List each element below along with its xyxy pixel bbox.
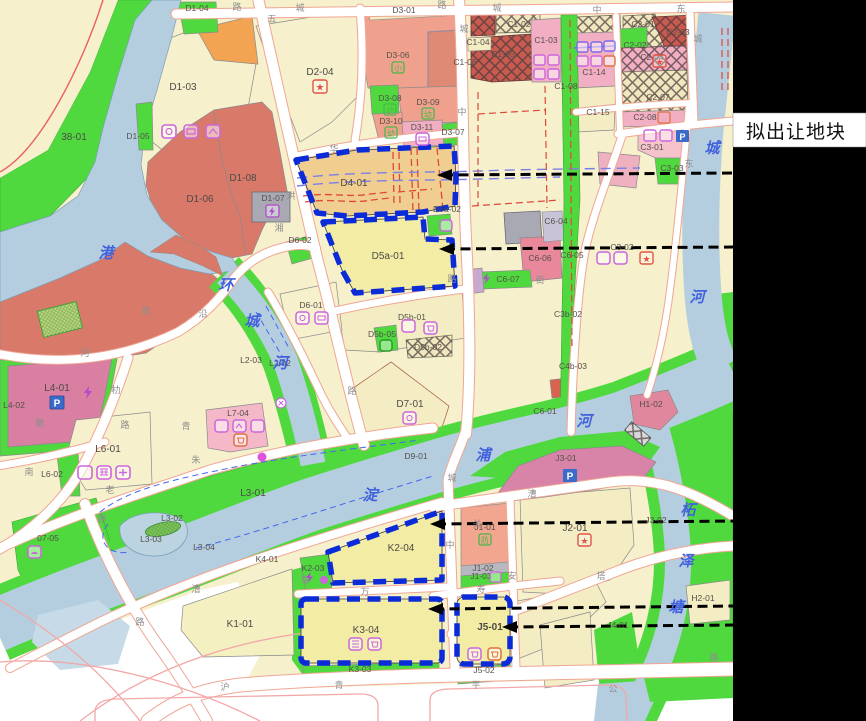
svg-text:东: 东 bbox=[684, 158, 693, 169]
svg-text:D9-01: D9-01 bbox=[404, 451, 427, 461]
svg-text:C2-08: C2-08 bbox=[633, 112, 656, 122]
svg-text:K3-03: K3-03 bbox=[349, 664, 372, 674]
svg-text:C2-01: C2-01 bbox=[631, 19, 654, 29]
svg-text:C1-02: C1-02 bbox=[507, 19, 530, 29]
svg-text:K2-03: K2-03 bbox=[302, 563, 325, 573]
svg-text:五: 五 bbox=[267, 14, 276, 24]
svg-text:J2-01: J2-01 bbox=[562, 523, 587, 534]
svg-text:C6-06: C6-06 bbox=[528, 253, 551, 263]
svg-text:L4-02: L4-02 bbox=[3, 400, 25, 410]
svg-text:C6-05: C6-05 bbox=[560, 250, 583, 260]
svg-text:L6-02: L6-02 bbox=[41, 469, 63, 479]
svg-text:★: ★ bbox=[316, 83, 325, 94]
svg-text:东: 东 bbox=[676, 3, 685, 14]
svg-text:街: 街 bbox=[535, 274, 544, 285]
svg-text:C1-05: C1-05 bbox=[491, 49, 514, 59]
svg-text:城: 城 bbox=[492, 3, 501, 13]
svg-text:J3-01: J3-01 bbox=[555, 453, 577, 463]
svg-text:L2-03: L2-03 bbox=[240, 355, 262, 365]
svg-text:安: 安 bbox=[507, 570, 516, 581]
svg-text:C1-15: C1-15 bbox=[586, 107, 609, 117]
svg-text:路: 路 bbox=[135, 616, 144, 627]
svg-text:拟出让地块: 拟出让地块 bbox=[746, 121, 846, 143]
svg-text:路: 路 bbox=[232, 1, 241, 12]
svg-text:D3-06: D3-06 bbox=[386, 50, 409, 60]
svg-text:城: 城 bbox=[693, 34, 702, 44]
svg-text:中: 中 bbox=[592, 4, 601, 15]
svg-text:老: 老 bbox=[105, 484, 114, 495]
svg-text:D5a-01: D5a-01 bbox=[372, 251, 405, 262]
svg-text:洪: 洪 bbox=[286, 190, 295, 201]
svg-text:南: 南 bbox=[24, 466, 33, 477]
svg-text:K3-04: K3-04 bbox=[353, 625, 380, 636]
svg-text:J4-01: J4-01 bbox=[607, 620, 629, 630]
svg-text:D1-08: D1-08 bbox=[229, 173, 257, 184]
svg-text:★: ★ bbox=[655, 57, 663, 67]
svg-text:小: 小 bbox=[394, 64, 402, 73]
svg-text:L3-04: L3-04 bbox=[193, 542, 215, 552]
svg-text:P: P bbox=[679, 132, 685, 142]
svg-text:D3-09: D3-09 bbox=[416, 97, 439, 107]
svg-text:观: 观 bbox=[141, 306, 150, 316]
svg-text:D5b-05: D5b-05 bbox=[368, 329, 396, 339]
svg-text:平: 平 bbox=[471, 680, 480, 690]
svg-text:L3-02: L3-02 bbox=[161, 513, 183, 523]
svg-text:K4-01: K4-01 bbox=[256, 554, 279, 564]
svg-text:K1-01: K1-01 bbox=[227, 619, 254, 630]
svg-text:D1-06: D1-06 bbox=[186, 194, 214, 205]
svg-text:L3-01: L3-01 bbox=[240, 488, 266, 499]
svg-text:幼: 幼 bbox=[424, 109, 432, 119]
svg-text:D1-05: D1-05 bbox=[126, 131, 149, 141]
svg-text:J5-02: J5-02 bbox=[473, 665, 495, 675]
svg-text:L4-01: L4-01 bbox=[44, 383, 70, 394]
svg-text:D3-07: D3-07 bbox=[441, 127, 464, 137]
svg-text:D6-01: D6-01 bbox=[299, 300, 322, 310]
svg-text:D1-04: D1-04 bbox=[185, 3, 208, 13]
svg-text:公: 公 bbox=[608, 684, 617, 694]
svg-text:C2-07: C2-07 bbox=[646, 92, 669, 102]
svg-text:H1-02: H1-02 bbox=[639, 399, 662, 409]
svg-text:路: 路 bbox=[709, 652, 718, 663]
svg-text:C3b-02: C3b-02 bbox=[554, 309, 582, 319]
svg-text:C1-03: C1-03 bbox=[534, 35, 557, 45]
svg-text:D4-01: D4-01 bbox=[340, 178, 368, 189]
svg-text:敏: 敏 bbox=[35, 417, 44, 428]
svg-text:H2-01: H2-01 bbox=[691, 593, 714, 603]
svg-text:K2-04: K2-04 bbox=[388, 543, 415, 554]
svg-text:幼: 幼 bbox=[387, 128, 395, 138]
svg-text:C2-03: C2-03 bbox=[666, 27, 689, 37]
svg-text:路: 路 bbox=[120, 419, 129, 430]
svg-text:路: 路 bbox=[347, 385, 356, 396]
svg-text:中: 中 bbox=[457, 106, 466, 117]
svg-text:幼: 幼 bbox=[386, 105, 394, 115]
svg-text:C3-03: C3-03 bbox=[660, 163, 683, 173]
svg-text:中: 中 bbox=[445, 539, 454, 550]
svg-text:C1-14: C1-14 bbox=[582, 67, 605, 77]
svg-text:城: 城 bbox=[459, 24, 468, 34]
svg-text:C6-04: C6-04 bbox=[544, 216, 567, 226]
svg-text:C3-01: C3-01 bbox=[640, 142, 663, 152]
svg-text:P: P bbox=[567, 472, 574, 483]
svg-text:城: 城 bbox=[295, 3, 304, 13]
svg-text:泽: 泽 bbox=[678, 553, 695, 570]
svg-text:D3-11: D3-11 bbox=[411, 122, 434, 132]
svg-text:J1-02: J1-02 bbox=[472, 563, 494, 573]
svg-text:D1-07: D1-07 bbox=[261, 193, 284, 203]
svg-text:★: ★ bbox=[642, 254, 650, 264]
svg-text:P: P bbox=[54, 399, 61, 410]
svg-text:路: 路 bbox=[447, 273, 456, 284]
svg-text:漕: 漕 bbox=[527, 488, 536, 499]
svg-text:漕: 漕 bbox=[191, 583, 200, 594]
svg-text:J3-02: J3-02 bbox=[645, 515, 667, 525]
svg-text:城: 城 bbox=[447, 473, 456, 483]
svg-text:华: 华 bbox=[329, 143, 338, 154]
svg-text:青: 青 bbox=[181, 420, 190, 431]
svg-text:L3-03: L3-03 bbox=[140, 534, 162, 544]
svg-text:寿: 寿 bbox=[476, 583, 485, 594]
svg-text:D3-01: D3-01 bbox=[392, 5, 415, 15]
svg-text:D1-03: D1-03 bbox=[169, 82, 197, 93]
svg-text:C6-07: C6-07 bbox=[496, 274, 519, 284]
svg-text:路: 路 bbox=[97, 513, 106, 524]
svg-text:C3-02: C3-02 bbox=[610, 242, 633, 252]
svg-text:湘: 湘 bbox=[274, 222, 283, 233]
svg-text:C6-01: C6-01 bbox=[533, 406, 556, 416]
svg-text:L7-04: L7-04 bbox=[227, 408, 249, 418]
svg-text:C2-02: C2-02 bbox=[623, 40, 646, 50]
svg-text:D6-02: D6-02 bbox=[288, 235, 311, 245]
svg-text:38-01: 38-01 bbox=[61, 132, 87, 143]
svg-text:D5b-02: D5b-02 bbox=[414, 342, 442, 352]
svg-text:沿: 沿 bbox=[198, 309, 207, 319]
svg-text:关: 关 bbox=[472, 518, 481, 529]
svg-text:青: 青 bbox=[334, 679, 343, 690]
svg-text:C1-06: C1-06 bbox=[453, 57, 476, 67]
svg-text:C4b-03: C4b-03 bbox=[559, 361, 587, 371]
svg-text:万: 万 bbox=[360, 587, 369, 597]
svg-text:防: 防 bbox=[481, 535, 489, 545]
svg-text:D7-01: D7-01 bbox=[396, 399, 424, 410]
svg-text:C1-04: C1-04 bbox=[466, 37, 489, 47]
svg-text:河: 河 bbox=[80, 347, 89, 358]
svg-text:沪: 沪 bbox=[220, 681, 229, 692]
svg-text:07-05: 07-05 bbox=[37, 533, 59, 543]
svg-text:朱: 朱 bbox=[191, 454, 200, 465]
svg-text:D5a-02: D5a-02 bbox=[433, 204, 461, 214]
svg-text:D2-04: D2-04 bbox=[306, 67, 334, 78]
svg-text:L6-01: L6-01 bbox=[95, 444, 121, 455]
svg-text:朸: 朸 bbox=[111, 384, 120, 395]
svg-text:C1-08: C1-08 bbox=[554, 81, 577, 91]
svg-text:D3-08: D3-08 bbox=[378, 93, 401, 103]
svg-text:D3-10: D3-10 bbox=[379, 116, 402, 126]
svg-text:塔: 塔 bbox=[596, 570, 605, 581]
svg-text:★: ★ bbox=[580, 536, 588, 546]
svg-text:路: 路 bbox=[437, 0, 446, 10]
svg-text:J5-01: J5-01 bbox=[477, 622, 503, 633]
